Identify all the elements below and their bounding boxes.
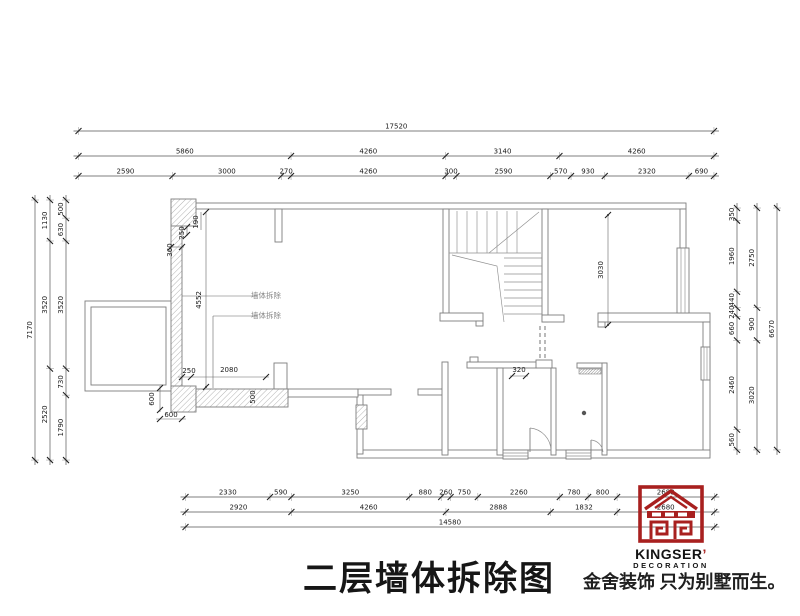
interior-label-layer: 455219025036025020806006005003203030墙体拆除…	[148, 215, 605, 419]
wall-upper-right-room-south	[598, 313, 710, 322]
corridor-wall	[440, 313, 483, 321]
dim-label: 570	[554, 168, 567, 176]
dim-label: 2460	[728, 376, 736, 394]
dim-label: 4260	[628, 148, 646, 156]
dim-label: 4260	[359, 148, 377, 156]
dim-label: 600	[148, 392, 156, 405]
dim-label: 3000	[218, 168, 236, 176]
stair-left-wall	[443, 209, 449, 319]
wall-east-lower	[703, 322, 710, 455]
dim-label: 3250	[341, 489, 359, 497]
brand-name: KINGSER’	[632, 548, 710, 561]
dim-label: 4260	[360, 504, 378, 512]
dim-label: 500	[249, 390, 257, 403]
dim-label: 260	[439, 489, 452, 497]
demolish-small-piece	[356, 405, 367, 429]
wall-south	[357, 450, 710, 458]
stair-break-line	[452, 255, 504, 322]
window-south-1	[503, 450, 528, 459]
dim-chain-top-total: 17520	[74, 123, 719, 136]
wall-interior-5	[602, 363, 607, 455]
dim-label: 2590	[494, 168, 512, 176]
dim-label: 1130	[41, 212, 49, 230]
dim-label: 2080	[220, 366, 238, 374]
door-swing-1	[530, 428, 551, 452]
dim-label: 730	[57, 375, 65, 388]
dim-label: 440	[728, 293, 736, 306]
kingser-logo-icon	[638, 485, 704, 543]
wall-interior-1	[442, 362, 448, 455]
dim-label: 300	[444, 168, 457, 176]
wall-interior-2	[467, 362, 537, 368]
dim-label: 2750	[748, 249, 756, 267]
dim-label: 250	[178, 226, 186, 239]
floor-drain	[582, 411, 586, 415]
demolish-southwest-block	[171, 386, 196, 412]
dim-label: 800	[596, 489, 609, 497]
pillar	[274, 363, 287, 389]
dim-label: 3030	[597, 261, 605, 279]
dimension-layer: 1752058604260314042602590300027042603002…	[26, 123, 781, 532]
dim-label: 600	[164, 411, 177, 419]
demolish-south-band	[196, 389, 288, 407]
dim-label: 4552	[195, 291, 203, 309]
dim-label: 1790	[57, 419, 65, 437]
dim-label: 320	[512, 366, 525, 374]
dim-label: 2320	[638, 168, 656, 176]
dim-label: 3140	[494, 148, 512, 156]
dim-label: 240	[728, 305, 736, 318]
dim-label: 630	[57, 223, 65, 236]
window-east-lower	[701, 347, 710, 380]
drawing-canvas: 1752058604260314042602590300027042603002…	[0, 0, 800, 616]
dim-chain-top-mid: 5860426031404260	[74, 148, 719, 161]
dim-label: 4260	[359, 168, 377, 176]
dim-label: 2920	[230, 504, 248, 512]
dim-chain-right-total: 6670	[768, 203, 781, 455]
dim-label: 590	[274, 489, 287, 497]
dim-chain-right-mid: 27509003020	[748, 203, 761, 455]
dim-label: 2330	[219, 489, 237, 497]
stair-right-wall	[542, 209, 548, 322]
wall-east-upper	[680, 209, 686, 248]
dim-label: 14580	[439, 519, 461, 527]
dim-label: 350	[728, 208, 736, 221]
dim-label: 3020	[748, 386, 756, 404]
window-east-upper	[677, 248, 689, 313]
staircase	[449, 211, 545, 360]
dim-label: 1960	[728, 247, 736, 265]
demolish-strip-right-room	[579, 369, 601, 374]
dim-label: 500	[57, 202, 65, 215]
dim-label: 6670	[768, 320, 776, 338]
dim-label: 360	[166, 243, 174, 256]
dim-label: 1832	[575, 504, 593, 512]
wall-stub-north	[275, 209, 282, 242]
dim-chain-right-detail: 35019604402406602460560	[728, 203, 741, 455]
dim-label: 660	[728, 322, 736, 335]
demolish-note: 墙体拆除	[251, 310, 281, 320]
dim-chain-left-detail: 50063035207301790	[57, 195, 70, 465]
brand-block: KINGSER’ DECORATION	[632, 485, 710, 570]
dim-chain-top-detail: 25903000270426030025905709302320690	[74, 168, 719, 181]
dim-label: 2888	[489, 504, 507, 512]
brand-slogan: 金舍装饰 只为别墅而生。	[583, 568, 786, 594]
dim-label: 900	[748, 317, 756, 330]
drawing-title: 二层墙体拆除图	[303, 551, 555, 600]
dim-label: 2520	[41, 405, 49, 423]
demolish-note: 墙体拆除	[251, 290, 281, 300]
dim-label: 780	[567, 489, 580, 497]
dim-label: 2590	[117, 168, 135, 176]
dim-label: 880	[419, 489, 432, 497]
dim-label: 690	[695, 168, 708, 176]
dim-label: 5860	[176, 148, 194, 156]
brand-apostrophe: ’	[702, 546, 706, 562]
wall-layer	[175, 203, 710, 458]
dim-label: 250	[182, 367, 195, 375]
dim-chain-left-total: 7170	[26, 195, 39, 465]
dim-label: 750	[458, 489, 471, 497]
wall-interior-4	[551, 368, 556, 455]
wall-interior-3	[497, 368, 503, 455]
dim-label: 190	[192, 215, 200, 228]
dim-label: 3520	[41, 296, 49, 314]
winder-diagonal	[489, 212, 539, 253]
window-south-2	[566, 450, 591, 459]
dim-label: 270	[279, 168, 292, 176]
dim-label: 17520	[385, 123, 407, 131]
dim-chain-left-mid: 113035202520	[41, 195, 54, 465]
dim-label: 560	[728, 433, 736, 446]
wall-north	[175, 203, 686, 209]
terrace-outline	[85, 301, 172, 391]
dim-label: 2260	[510, 489, 528, 497]
dim-label: 7170	[26, 321, 34, 339]
dim-label: 930	[581, 168, 594, 176]
dim-label: 3520	[57, 296, 65, 314]
